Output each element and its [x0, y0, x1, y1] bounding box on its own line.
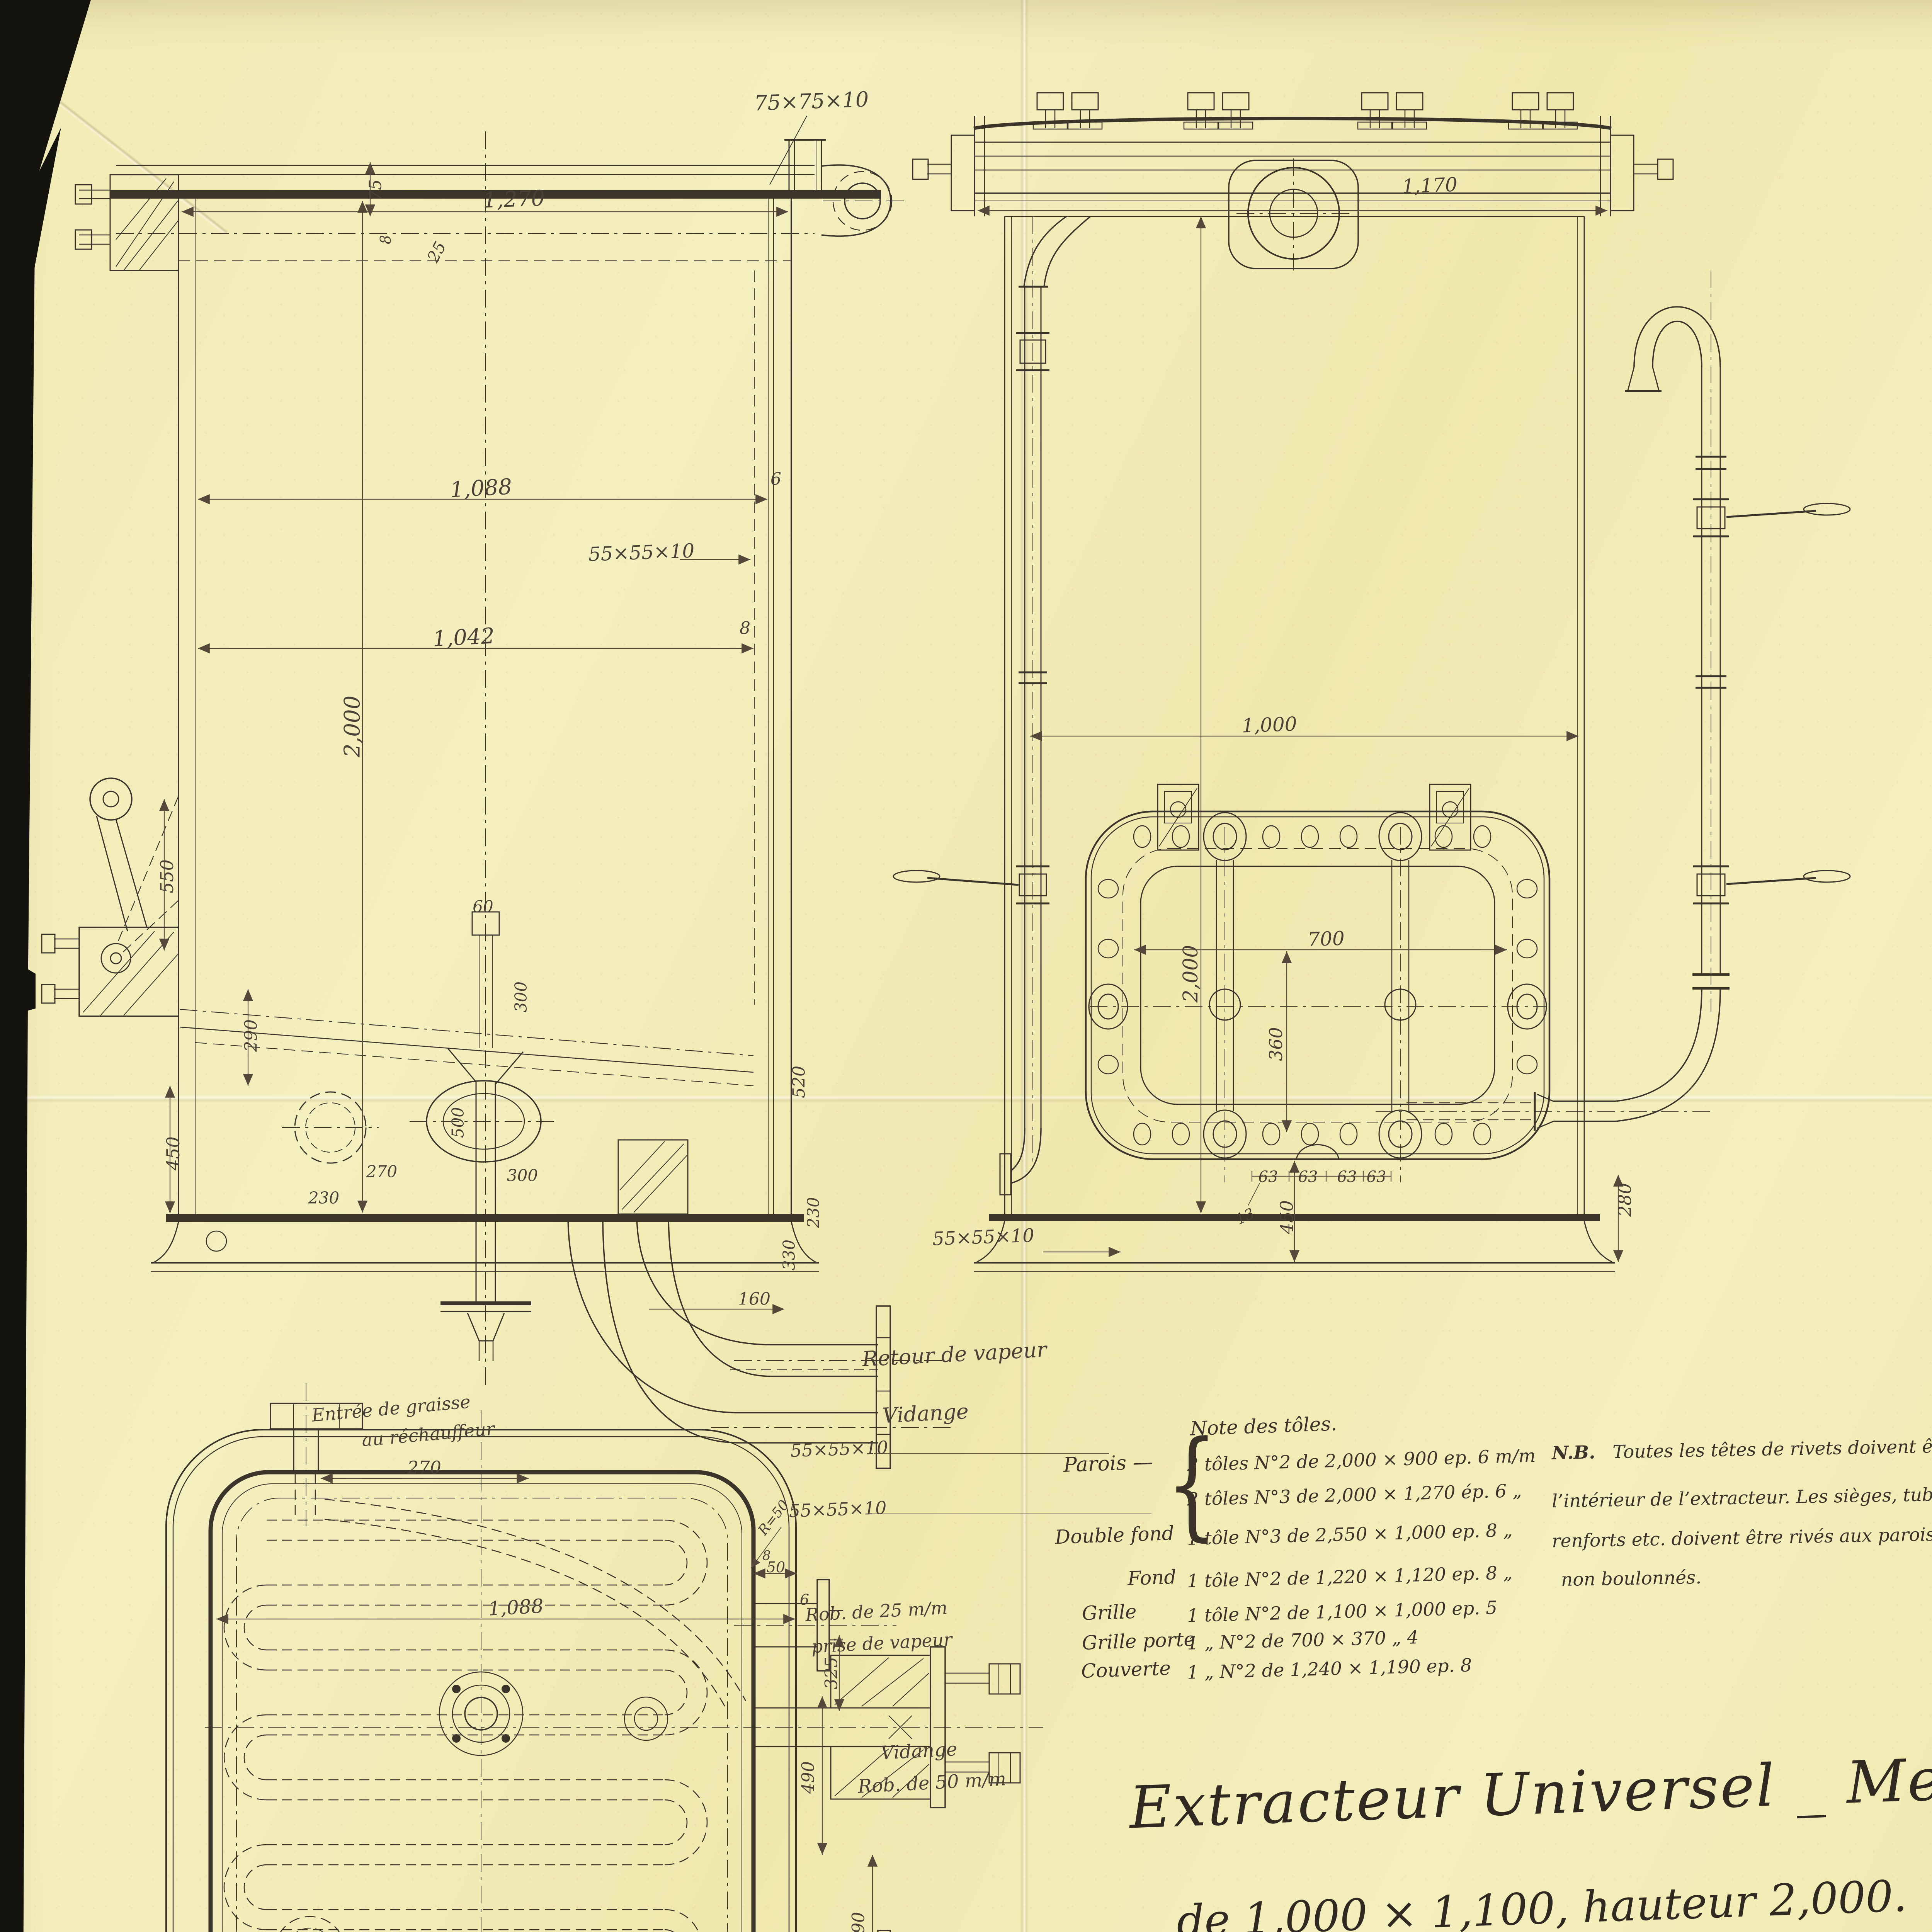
plan-view [166, 1383, 1043, 1932]
dimension-label: 63 [1367, 1168, 1386, 1186]
right-elevation-view [893, 93, 1850, 1271]
nb-line: non boulonnés. [1561, 1567, 1702, 1590]
dimension-label: 1,088 [449, 474, 513, 502]
dimension-label: 50 [767, 1559, 785, 1576]
dimension-label: 550 [156, 859, 177, 893]
dimension-label: 360 [1265, 1027, 1286, 1061]
beam-bolts [1033, 93, 1577, 129]
dimension-label: 63 [1337, 1168, 1357, 1186]
notes-row-label: Fond [1127, 1566, 1177, 1590]
scanned-technical-drawing: { "title_block": { "line1": "Extracteur … [0, 0, 1932, 1932]
drawing-linework [0, 0, 1932, 1932]
notes-row-label: Grille porte [1082, 1628, 1196, 1654]
dimension-label: 300 [512, 981, 531, 1012]
dimension-label: 1,088 [488, 1595, 544, 1620]
dimension-label: 63 [1259, 1168, 1278, 1186]
cover-bosses [1089, 813, 1546, 1158]
dimension-label: 300 [507, 1166, 538, 1185]
dimension-label: 270 [366, 1162, 397, 1181]
drain-label: Vidange [882, 1399, 969, 1428]
notes-row-label: Couverte [1081, 1657, 1171, 1682]
dimension-label: 55×55×10 [932, 1225, 1034, 1250]
notes-row-label: Grille [1082, 1600, 1137, 1625]
notes-row-label: Double fond [1054, 1522, 1175, 1549]
dimension-label: 160 [738, 1289, 770, 1309]
angle-profile-callout: 75×75×10 [754, 87, 869, 115]
dimension-label: 8 [377, 235, 394, 244]
dimension-label: 330 [780, 1240, 799, 1270]
dimension-label: 1,270 [483, 186, 545, 213]
dimension-label: 230 [804, 1197, 823, 1228]
dimension-label: 390 [849, 1912, 869, 1932]
dimension-label: 63 [1298, 1168, 1318, 1186]
dimension-label: 280 [1614, 1183, 1635, 1217]
dimension-label: 450 [1276, 1200, 1297, 1234]
dimension-label: 325 [822, 1657, 842, 1689]
dimension-label: 55×55×10 [790, 1437, 888, 1461]
left-elevation-view [42, 116, 954, 1468]
dimension-label: 1,042 [432, 623, 495, 651]
dimension-label: 2,000 [1179, 945, 1202, 1003]
dimension-label: 520 [789, 1066, 809, 1098]
dimension-label: 1,000 [1241, 713, 1297, 737]
dimension-label: 2,000 [340, 696, 365, 757]
dimension-label: 55×55×10 [588, 539, 695, 566]
dimension-label: 450 [163, 1136, 184, 1170]
nb-prefix: N.B. [1552, 1442, 1595, 1464]
dimension-label: 6 [800, 1591, 809, 1608]
cover-bolt-holes [1098, 826, 1537, 1145]
notes-row-label: Parois — [1063, 1451, 1153, 1477]
dimension-label: 290 [241, 1019, 261, 1052]
dimension-label: 490 [799, 1761, 818, 1794]
dimension-label: 60 [473, 897, 493, 916]
dimension-label: 270 [407, 1457, 441, 1478]
dimension-label: 8 [740, 619, 750, 638]
dimension-label: 1,170 [1401, 173, 1458, 198]
dimension-label: 55×55×10 [789, 1497, 887, 1522]
dimension-label: 700 [1307, 927, 1345, 951]
dimension-label: 500 [449, 1107, 468, 1138]
dimension-label: 6 [770, 469, 781, 489]
drain-valve-label: Vidange [880, 1738, 957, 1764]
dimension-label: 75 [366, 179, 386, 201]
heating-coil [224, 1474, 746, 1932]
dimension-label: 230 [308, 1189, 339, 1207]
